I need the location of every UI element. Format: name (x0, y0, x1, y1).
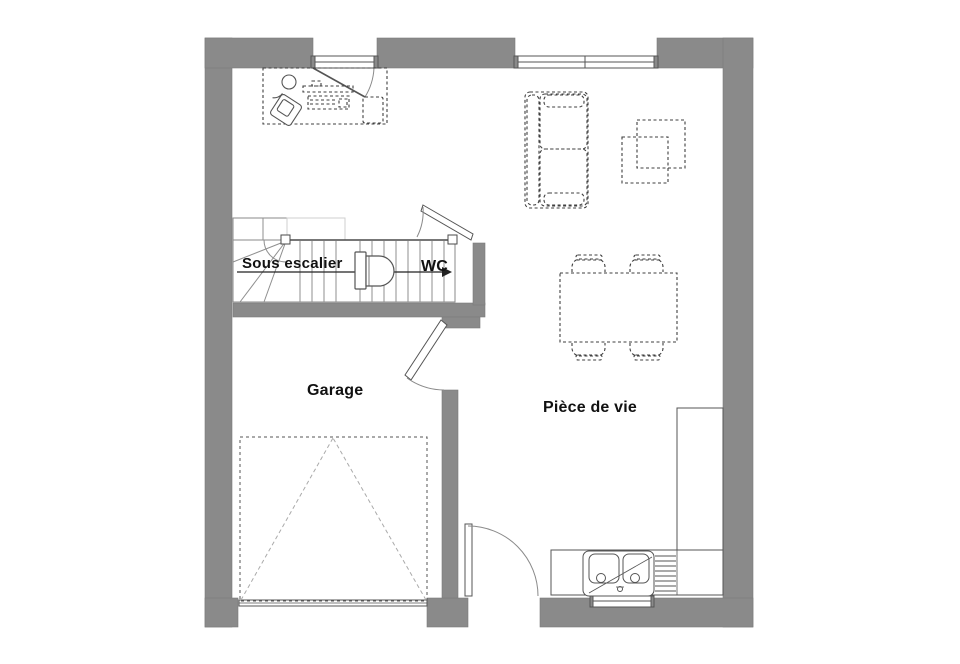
sofa-armrest-top (544, 95, 584, 107)
wc-side-wall (473, 243, 485, 305)
floor-plan-drawing: Sous escalier WC Garage Pièce de vie (0, 0, 960, 664)
understair-wall (233, 303, 485, 317)
coffee-table-front (622, 137, 668, 183)
handrail-post-right (448, 235, 457, 244)
french-window-top-left (311, 56, 378, 68)
winder-upper-step (233, 218, 287, 240)
coffee-tables (622, 120, 685, 183)
sofa (525, 92, 588, 208)
left-wall (205, 38, 232, 627)
bay-window-top-right (514, 56, 658, 68)
sofa-outline (525, 92, 588, 208)
double-sink (583, 551, 654, 596)
sofa-seat-top (540, 94, 587, 149)
label-wc: WC (421, 258, 448, 275)
garage-hall-wall (442, 390, 458, 598)
wc-door-leaf (421, 205, 473, 240)
bottom-wall-left (205, 598, 238, 627)
label-piece-de-vie: Pièce de vie (543, 399, 637, 416)
toilet-tank (355, 252, 366, 289)
dining-table (560, 273, 677, 342)
stool (282, 75, 296, 89)
label-garage: Garage (307, 382, 363, 399)
bottom-wall-middle (427, 598, 468, 627)
sofa-armrest-bottom (544, 193, 584, 205)
hall-wall-stub (442, 317, 480, 328)
kitchen (551, 408, 723, 596)
sink-drain-left (597, 574, 606, 583)
windows (311, 56, 658, 607)
office-french-door (313, 68, 374, 97)
label-sous-escalier: Sous escalier (242, 255, 343, 272)
sink-drain-right (631, 574, 640, 583)
car-parking-space (240, 437, 427, 601)
garage-side-door (405, 320, 447, 390)
handrail-post-left (281, 235, 290, 244)
computer-tower (363, 97, 383, 123)
floor-plan: Sous escalier WC Garage Pièce de vie (0, 0, 960, 664)
dining-chair-bottom-left (572, 343, 605, 360)
keyboard (308, 96, 349, 109)
coffee-table-back (637, 120, 685, 168)
dining-table-group (560, 255, 677, 360)
dining-chair-top-left (572, 255, 605, 272)
walls (205, 38, 753, 627)
upper-flight-ghost (287, 218, 345, 240)
entry-door-leaf (465, 524, 472, 596)
desk-item (312, 81, 321, 86)
garage-side-door-leaf (405, 320, 447, 380)
entry-door (465, 524, 538, 596)
wc-door (417, 205, 473, 240)
right-wall (723, 38, 753, 627)
office-chair (264, 90, 302, 126)
sofa-backrest (527, 95, 539, 205)
dining-chair-bottom-right (630, 343, 663, 360)
kitchen-window-bottom (590, 596, 654, 607)
top-wall-left (205, 38, 313, 68)
top-wall-middle (377, 38, 515, 68)
tall-cabinet (677, 408, 723, 550)
dining-chair-top-right (630, 255, 663, 272)
toilet-bowl (366, 256, 394, 286)
sofa-seat-bottom (540, 149, 587, 206)
desk-with-computer (263, 68, 387, 127)
